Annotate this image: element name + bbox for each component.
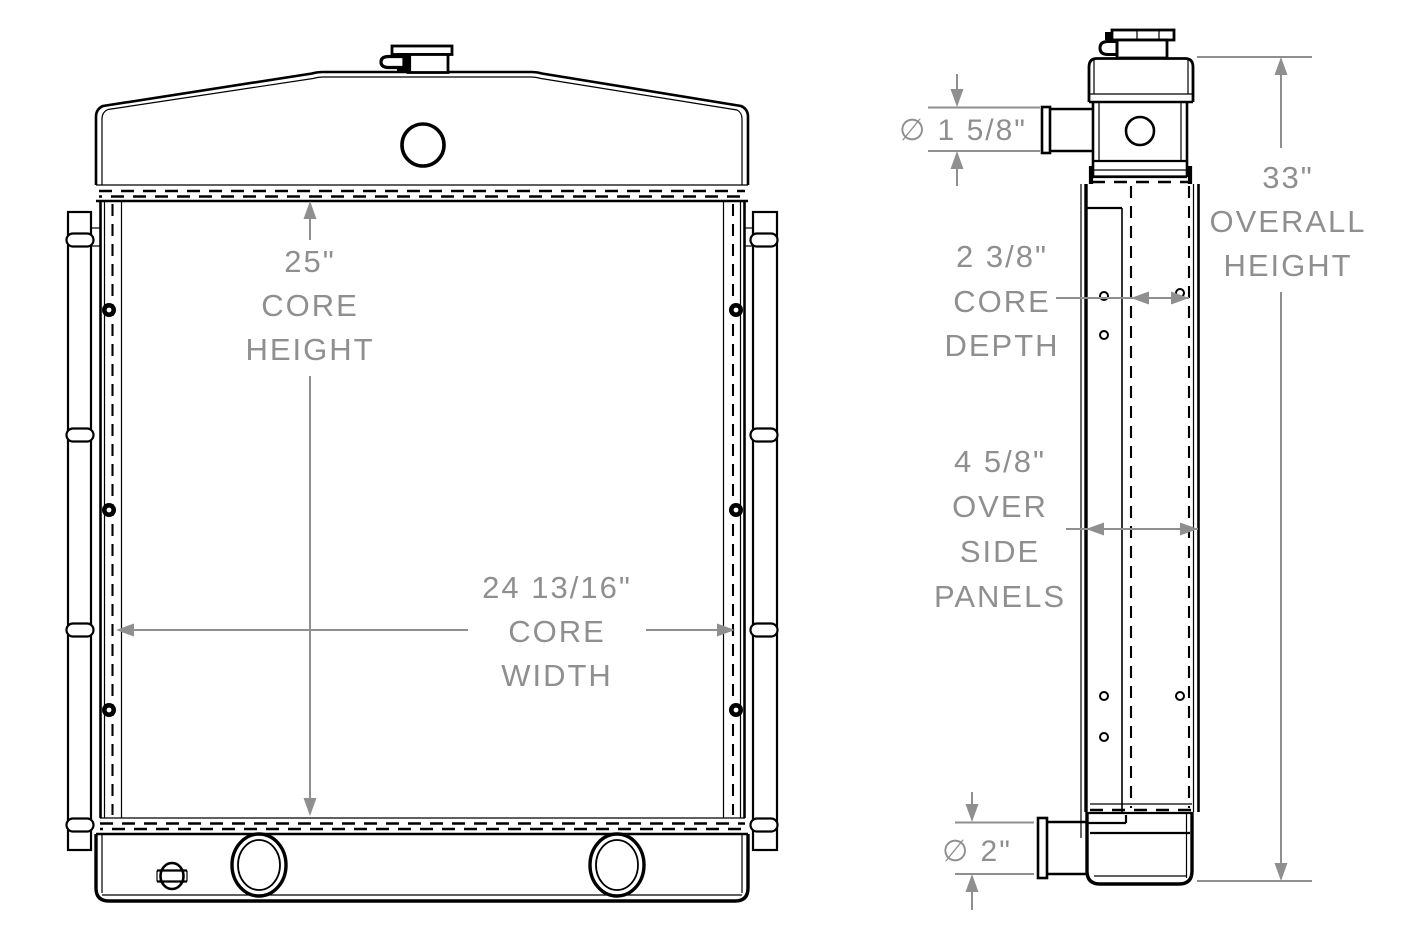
over-side-panels-label-2: SIDE	[960, 534, 1040, 569]
inlet-box-hole	[1126, 117, 1154, 145]
filler-cap-front	[381, 46, 452, 73]
outlet-opening	[590, 834, 644, 896]
mounting-slot	[67, 234, 94, 247]
over-side-panels-label-3: PANELS	[934, 579, 1066, 614]
over-side-panels-label-1: OVER	[952, 489, 1048, 524]
mounting-slot	[67, 819, 94, 832]
radiator-dimension-drawing: 25" CORE HEIGHT 24 13/16" CORE WIDTH	[0, 0, 1410, 950]
overflow-tube-front	[381, 57, 404, 68]
inlet-diameter-value: ∅ 1 5/8"	[899, 114, 1027, 147]
outlet-diameter-value: ∅ 2"	[942, 835, 1012, 868]
core-width-label-1: CORE	[508, 614, 606, 649]
core-height-value: 25"	[284, 244, 336, 279]
cap-ear	[1100, 42, 1117, 55]
core-height-label-2: HEIGHT	[245, 332, 374, 367]
core-depth-value: 2 3/8"	[956, 239, 1048, 274]
outlet-opening	[232, 834, 286, 896]
core-depth-label-2: DEPTH	[944, 328, 1059, 363]
tank-face-hole	[402, 124, 444, 166]
filler-cap-side	[1100, 30, 1174, 58]
overall-height-label-2: HEIGHT	[1223, 248, 1352, 283]
overall-height-value: 33"	[1262, 160, 1314, 195]
top-tank-side	[1089, 59, 1193, 103]
mounting-slot	[67, 429, 94, 442]
core-height-label-1: CORE	[261, 288, 359, 323]
core-width-value: 24 13/16"	[482, 570, 632, 605]
mounting-slot	[751, 429, 778, 442]
mounting-slot	[751, 234, 778, 247]
core-depth-label-1: CORE	[953, 284, 1051, 319]
overall-height-label-1: OVERALL	[1209, 204, 1366, 239]
drawing-canvas: 25" CORE HEIGHT 24 13/16" CORE WIDTH	[0, 0, 1410, 950]
over-side-panels-value: 4 5/8"	[954, 444, 1046, 479]
mounting-slot	[751, 819, 778, 832]
mounting-slot	[67, 624, 94, 637]
core-width-label-2: WIDTH	[501, 658, 613, 693]
mounting-slot	[751, 624, 778, 637]
